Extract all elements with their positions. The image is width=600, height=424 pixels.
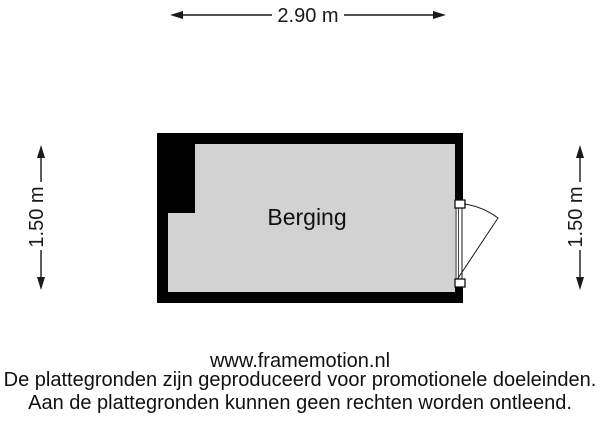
door-jamb-bottom — [455, 279, 465, 287]
door-leaf — [456, 208, 462, 279]
arrowhead-right-icon — [433, 11, 446, 19]
right-dimension-label: 1.50 m — [565, 186, 587, 247]
top-dimension-label: 2.90 m — [277, 5, 338, 27]
door-jamb-top — [455, 200, 465, 208]
disclaimer-line-1: De plattegronden zijn geproduceerd voor … — [0, 369, 600, 391]
left-dimension: 1.50 m — [26, 145, 48, 290]
top-dimension: 2.90 m — [170, 5, 446, 27]
left-dimension-label: 1.50 m — [26, 186, 48, 247]
door-swing-arc — [458, 204, 499, 279]
arrowhead-down-icon — [576, 277, 584, 290]
floorplan-page: 2.90 m 1.50 m 1.50 m — [0, 0, 600, 424]
right-dimension: 1.50 m — [565, 145, 587, 290]
disclaimer-line-2: Aan de plattegronden kunnen geen rechten… — [0, 392, 600, 414]
arrowhead-down-icon — [37, 277, 45, 290]
door — [455, 200, 498, 287]
room-label: Berging — [267, 204, 346, 230]
